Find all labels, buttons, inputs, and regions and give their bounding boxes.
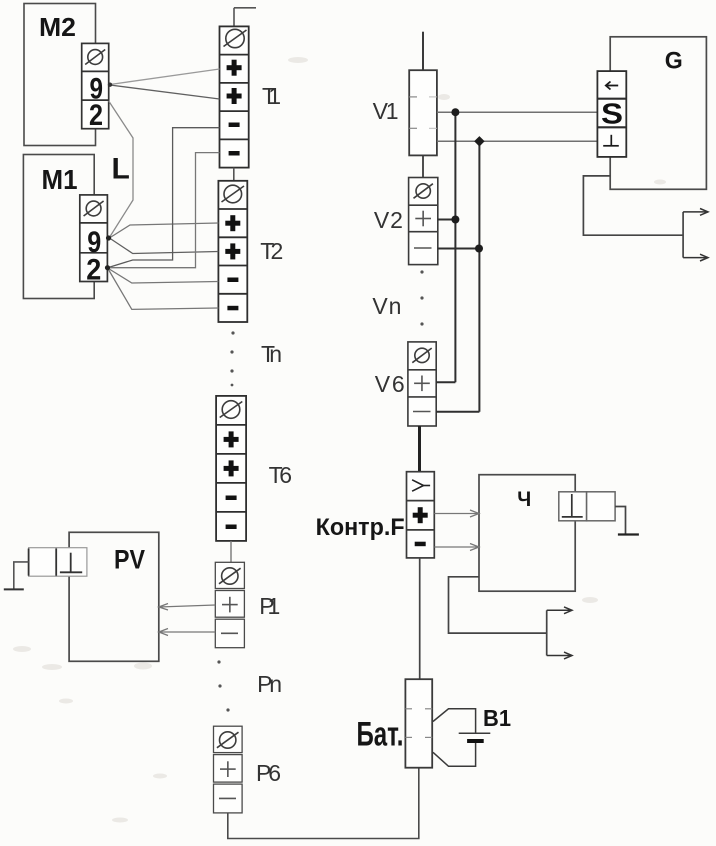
svg-text:B1: B1 <box>483 705 511 731</box>
svg-text:V2: V2 <box>374 207 403 233</box>
svg-text:T2: T2 <box>260 238 283 264</box>
svg-text:2: 2 <box>86 254 101 287</box>
svg-text:P6: P6 <box>256 760 281 786</box>
svg-text:V1: V1 <box>373 98 399 124</box>
svg-text:T6: T6 <box>269 462 293 488</box>
svg-text:Ч: Ч <box>517 487 531 511</box>
svg-text:Бат.: Бат. <box>357 716 404 754</box>
svg-text:G: G <box>665 48 683 75</box>
svg-text:Контр.F: Контр.F <box>316 514 405 541</box>
svg-text:T1: T1 <box>262 83 281 109</box>
svg-text:Tn: Tn <box>261 341 282 367</box>
svg-text:V6: V6 <box>375 371 405 397</box>
svg-text:2: 2 <box>89 99 103 132</box>
svg-text:P1: P1 <box>259 593 280 619</box>
svg-text:PV: PV <box>114 544 145 574</box>
svg-text:M1: M1 <box>42 164 78 195</box>
svg-text:Pn: Pn <box>257 671 282 697</box>
svg-text:Vn: Vn <box>372 293 401 319</box>
svg-text:S: S <box>601 99 623 131</box>
svg-text:L: L <box>112 152 130 185</box>
svg-text:M2: M2 <box>39 12 76 42</box>
